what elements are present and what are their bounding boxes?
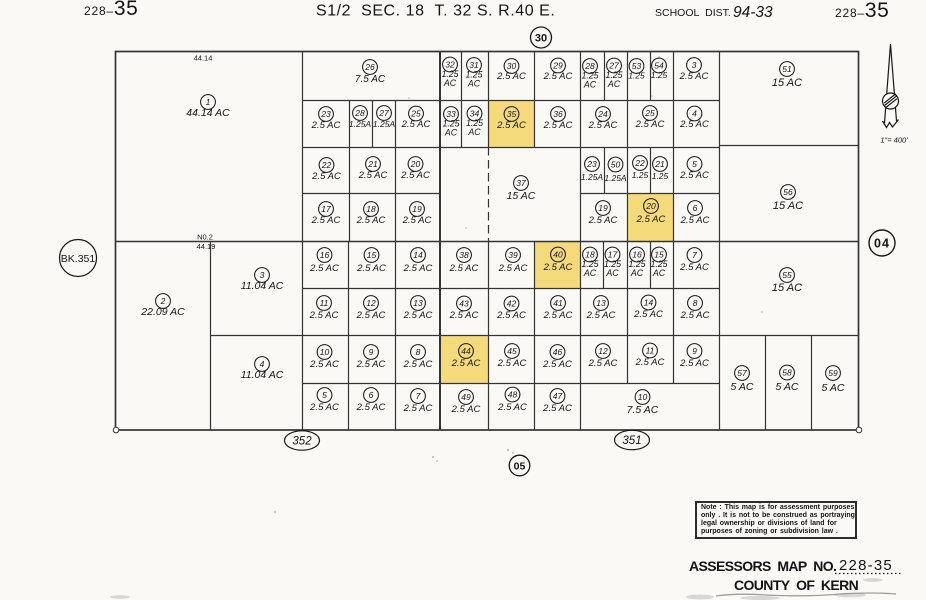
svg-text:2.5 AC: 2.5 AC	[356, 310, 386, 321]
svg-text:2.5 AC: 2.5 AC	[679, 262, 709, 273]
svg-text:AC: AC	[583, 268, 597, 278]
svg-text:45: 45	[507, 346, 517, 356]
svg-text:2.5 AC: 2.5 AC	[542, 359, 572, 370]
svg-text:34: 34	[470, 109, 480, 119]
svg-text:32: 32	[445, 60, 455, 70]
svg-text:2.5 AC: 2.5 AC	[311, 215, 341, 226]
svg-text:27: 27	[608, 61, 619, 71]
svg-text:1.25: 1.25	[628, 71, 645, 81]
svg-text:2.5 AC: 2.5 AC	[356, 359, 386, 370]
svg-text:23: 23	[320, 109, 331, 119]
svg-text:43: 43	[459, 299, 469, 309]
svg-text:15 AC: 15 AC	[772, 282, 802, 294]
svg-text:26: 26	[364, 62, 375, 72]
svg-text:2.5 AC: 2.5 AC	[542, 403, 572, 414]
svg-text:purposes of zoning or subdivis: purposes of zoning or subdivision law .	[701, 528, 838, 535]
svg-text:2.5 AC: 2.5 AC	[588, 215, 618, 226]
svg-text:2.5 AC: 2.5 AC	[679, 71, 709, 82]
svg-text:11: 11	[320, 298, 329, 308]
svg-text:6: 6	[693, 203, 698, 213]
svg-text:30: 30	[507, 61, 517, 71]
svg-text:AC: AC	[467, 127, 481, 137]
svg-text:50: 50	[611, 160, 621, 170]
svg-text:5: 5	[692, 159, 697, 169]
svg-text:2.5 AC: 2.5 AC	[400, 170, 430, 181]
svg-text:2.5 AC: 2.5 AC	[309, 310, 339, 321]
svg-text:24: 24	[597, 109, 608, 119]
svg-text:228–35: 228–35	[84, 0, 138, 20]
svg-text:2.5 AC: 2.5 AC	[449, 263, 479, 274]
svg-text:10: 10	[638, 392, 648, 402]
svg-text:2.5 AC: 2.5 AC	[358, 170, 388, 181]
svg-text:AC: AC	[652, 268, 666, 278]
svg-text:15: 15	[367, 250, 377, 260]
svg-text:AC: AC	[443, 78, 457, 88]
svg-text:2.5 AC: 2.5 AC	[356, 215, 386, 226]
svg-text:3: 3	[692, 60, 697, 70]
svg-text:44.14: 44.14	[194, 54, 213, 63]
svg-text:56: 56	[783, 187, 793, 197]
svg-text:11: 11	[646, 346, 655, 356]
svg-text:2: 2	[160, 296, 166, 306]
svg-text:7: 7	[692, 250, 697, 260]
svg-text:AC: AC	[630, 268, 644, 278]
svg-text:12: 12	[366, 298, 376, 308]
svg-text:31: 31	[469, 60, 479, 70]
svg-text:44.19: 44.19	[197, 242, 216, 251]
svg-text:94-33: 94-33	[733, 4, 773, 21]
svg-text:7.5 AC: 7.5 AC	[355, 74, 386, 85]
svg-text:2.5 AC: 2.5 AC	[403, 263, 433, 274]
svg-text:2.5 AC: 2.5 AC	[449, 310, 479, 321]
svg-text:2.5 AC: 2.5 AC	[633, 309, 663, 320]
svg-text:2.5 AC: 2.5 AC	[401, 119, 431, 130]
svg-text:57: 57	[737, 368, 747, 378]
svg-text:15: 15	[654, 250, 664, 260]
svg-text:2.5 AC: 2.5 AC	[496, 71, 526, 82]
svg-text:2.5 AC: 2.5 AC	[497, 358, 527, 369]
svg-text:351: 351	[622, 435, 641, 447]
svg-text:19: 19	[412, 204, 422, 214]
svg-text:25: 25	[644, 108, 655, 118]
svg-text:2.5 AC: 2.5 AC	[498, 263, 528, 274]
svg-text:42: 42	[507, 299, 517, 309]
svg-text:22: 22	[634, 158, 645, 168]
svg-text:16: 16	[320, 250, 330, 260]
svg-text:2.5 AC: 2.5 AC	[679, 170, 709, 181]
svg-text:55: 55	[782, 270, 792, 280]
svg-text:BK.351: BK.351	[61, 253, 96, 265]
svg-text:2.5 AC: 2.5 AC	[496, 310, 526, 321]
svg-text:48: 48	[508, 390, 518, 400]
svg-text:17: 17	[608, 250, 618, 260]
svg-text:AC: AC	[583, 80, 597, 90]
svg-text:30: 30	[535, 33, 547, 45]
svg-text:05: 05	[514, 461, 526, 473]
svg-text:25: 25	[410, 109, 421, 119]
svg-text:3: 3	[260, 270, 265, 280]
svg-text:28: 28	[354, 108, 365, 118]
svg-text:4: 4	[692, 109, 697, 119]
svg-text:5: 5	[322, 390, 327, 400]
svg-text:2.5 AC: 2.5 AC	[680, 215, 710, 226]
svg-text:legal ownership or divisions o: legal ownership or divisions of land for	[701, 520, 837, 527]
svg-text:29: 29	[552, 61, 563, 71]
svg-text:47: 47	[553, 391, 563, 401]
svg-text:21: 21	[367, 159, 378, 169]
svg-text:2.5 AC: 2.5 AC	[588, 358, 618, 369]
svg-text:2.5 AC: 2.5 AC	[311, 120, 341, 131]
svg-text:20: 20	[410, 159, 421, 169]
svg-text:2.5 AC: 2.5 AC	[311, 171, 341, 182]
svg-text:11.04 AC: 11.04 AC	[241, 280, 284, 292]
svg-text:2.5 AC: 2.5 AC	[403, 310, 433, 321]
svg-text:21: 21	[654, 159, 665, 169]
svg-text:9: 9	[369, 347, 374, 357]
svg-text:AC: AC	[605, 268, 619, 278]
svg-text:2.5 AC: 2.5 AC	[680, 310, 710, 321]
svg-text:Note : This map is for assessm: Note : This map is for assessment purpos…	[701, 504, 854, 511]
svg-text:11.04 AC: 11.04 AC	[241, 369, 284, 381]
svg-text:2.5 AC: 2.5 AC	[309, 359, 339, 370]
svg-text:22.09 AC: 22.09 AC	[140, 306, 185, 318]
svg-text:5 AC: 5 AC	[822, 382, 845, 394]
svg-text:7.5 AC: 7.5 AC	[627, 404, 659, 416]
svg-text:51: 51	[782, 64, 792, 74]
svg-text:2.5 AC: 2.5 AC	[356, 263, 386, 274]
svg-text:33: 33	[446, 109, 456, 119]
svg-text:ASSESSORS MAP NO.: ASSESSORS MAP NO.	[689, 558, 836, 574]
svg-text:17: 17	[321, 204, 331, 214]
svg-text:S1/2 SEC. 18 T. 32 S. R.40 E: S1/2 SEC. 18 T. 32 S. R.40 E.	[316, 3, 555, 20]
svg-text:2.5 AC: 2.5 AC	[543, 310, 573, 321]
svg-text:10: 10	[320, 347, 330, 357]
svg-text:15 AC: 15 AC	[772, 77, 802, 89]
svg-text:49: 49	[461, 392, 471, 402]
svg-text:14: 14	[413, 250, 423, 260]
svg-text:38: 38	[459, 250, 469, 260]
svg-text:18: 18	[366, 204, 376, 214]
svg-text:1.25A: 1.25A	[604, 173, 627, 183]
svg-text:59: 59	[828, 368, 838, 378]
svg-text:1.25: 1.25	[651, 70, 668, 80]
svg-text:352: 352	[292, 436, 312, 448]
svg-text:16: 16	[632, 250, 642, 260]
svg-text:1.25A: 1.25A	[581, 172, 604, 182]
svg-text:2.5 AC: 2.5 AC	[636, 214, 666, 225]
svg-text:39: 39	[508, 250, 518, 260]
svg-text:27: 27	[378, 108, 389, 118]
svg-text:28: 28	[584, 61, 595, 71]
svg-text:53: 53	[632, 61, 642, 71]
svg-text:2.5 AC: 2.5 AC	[403, 403, 433, 414]
svg-text:5 AC: 5 AC	[731, 381, 754, 393]
svg-text:COUNTY OF KERN: COUNTY OF KERN	[734, 577, 859, 593]
svg-text:only . It is not to be constru: only . It is not to be construed as port…	[701, 512, 855, 519]
svg-text:23: 23	[586, 159, 597, 169]
svg-text:44: 44	[461, 346, 471, 356]
svg-text:7: 7	[416, 391, 421, 401]
svg-text:6: 6	[369, 390, 374, 400]
svg-text:2.5 AC: 2.5 AC	[496, 120, 526, 131]
svg-text:228-35: 228-35	[839, 557, 893, 574]
svg-text:54: 54	[654, 61, 664, 71]
svg-text:1″= 400′: 1″= 400′	[880, 136, 908, 145]
svg-text:SCHOOL DIST.: SCHOOL DIST.	[655, 7, 731, 19]
svg-text:AC: AC	[607, 79, 621, 89]
svg-text:8: 8	[693, 298, 698, 308]
svg-text:2.5 AC: 2.5 AC	[588, 120, 618, 131]
svg-text:5 AC: 5 AC	[776, 381, 799, 393]
svg-text:46: 46	[553, 347, 563, 357]
svg-text:40: 40	[553, 250, 563, 260]
svg-text:41: 41	[553, 298, 563, 308]
svg-text:2.5 AC: 2.5 AC	[309, 402, 339, 413]
svg-text:22: 22	[321, 160, 332, 170]
svg-text:2.5 AC: 2.5 AC	[403, 359, 433, 370]
svg-text:1.25A: 1.25A	[373, 119, 396, 129]
svg-text:1.25: 1.25	[652, 171, 669, 181]
svg-text:20: 20	[645, 201, 656, 211]
svg-text:2.5 AC: 2.5 AC	[497, 402, 527, 413]
svg-text:2.5 AC: 2.5 AC	[679, 358, 709, 369]
svg-text:13: 13	[596, 298, 606, 308]
svg-text:19: 19	[598, 203, 608, 213]
svg-text:2.5 AC: 2.5 AC	[402, 215, 432, 226]
svg-text:2.5 AC: 2.5 AC	[635, 357, 665, 368]
svg-text:N0.2: N0.2	[197, 233, 213, 242]
svg-text:04: 04	[874, 237, 890, 251]
svg-text:13: 13	[413, 298, 423, 308]
svg-text:1.25A: 1.25A	[349, 119, 372, 129]
svg-text:2.5 AC: 2.5 AC	[679, 119, 709, 130]
svg-text:12: 12	[598, 346, 608, 356]
svg-text:1: 1	[206, 97, 211, 107]
svg-text:2.5 AC: 2.5 AC	[543, 71, 573, 82]
svg-text:1.25: 1.25	[632, 170, 649, 180]
svg-text:44.14 AC: 44.14 AC	[186, 107, 230, 119]
svg-text:58: 58	[782, 368, 792, 378]
svg-text:18: 18	[585, 250, 595, 260]
svg-text:2.5 AC: 2.5 AC	[451, 404, 481, 415]
svg-text:15 AC: 15 AC	[773, 200, 803, 212]
svg-text:37: 37	[516, 178, 526, 188]
svg-text:2.5 AC: 2.5 AC	[543, 120, 573, 131]
svg-text:35: 35	[507, 109, 517, 119]
svg-text:2.5 AC: 2.5 AC	[451, 358, 481, 369]
svg-text:9: 9	[692, 346, 697, 356]
svg-text:15 AC: 15 AC	[507, 190, 536, 202]
svg-text:2.5 AC: 2.5 AC	[543, 262, 573, 273]
svg-text:14: 14	[644, 298, 654, 308]
svg-text:8: 8	[416, 347, 421, 357]
svg-text:2.5 AC: 2.5 AC	[356, 402, 386, 413]
svg-text:228–35: 228–35	[835, 0, 889, 22]
svg-text:2.5 AC: 2.5 AC	[635, 119, 665, 130]
svg-text:4: 4	[260, 359, 265, 369]
svg-text:AC: AC	[467, 79, 481, 89]
svg-text:2.5 AC: 2.5 AC	[309, 263, 339, 274]
svg-text:2.5 AC: 2.5 AC	[586, 310, 616, 321]
svg-text:AC: AC	[444, 128, 458, 138]
svg-text:36: 36	[553, 109, 563, 119]
